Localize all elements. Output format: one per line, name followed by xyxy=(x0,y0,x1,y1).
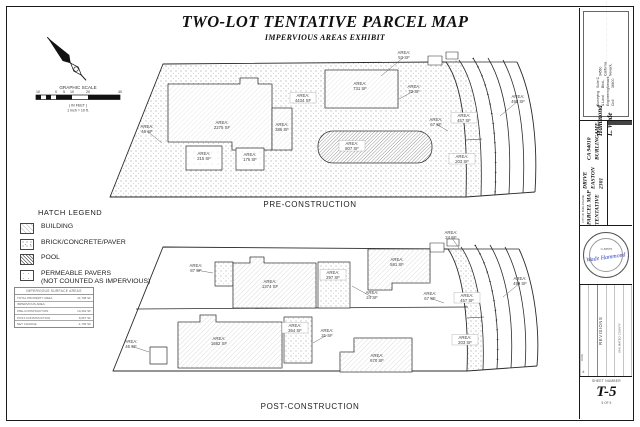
engineer-box: L. Wade Hammond Civil Engineering & Land… xyxy=(580,8,632,121)
table-row: IMPERVIOUS AREA: xyxy=(15,302,93,309)
sheet-header: TWO-LOT TENTATIVE PARCEL MAP IMPERVIOUS … xyxy=(90,12,560,42)
permeable-swatch-icon xyxy=(20,270,34,281)
page-subtitle: IMPERVIOUS AREAS EXHIBIT xyxy=(90,33,560,42)
legend-item-label: BUILDING xyxy=(41,223,73,231)
legend-item-label: PERMEABLE PAVERS (NOT COUNTED AS IMPERVI… xyxy=(41,270,150,287)
table-row: NET CHANGE-1,795 SF xyxy=(15,321,93,327)
seal-icon: C-66575 Wade Hammond xyxy=(583,232,629,278)
project-box: TENTATIVE PARCEL MAP 2301 EASTON DRIVE B… xyxy=(580,121,632,226)
project-city-state: BURLINGAME, CA 94010 xyxy=(586,121,602,160)
parcel-map-sheet: GRAPHIC SCALE 1005102040 ( IN FEET ) 1 i… xyxy=(0,0,640,427)
legend-title: HATCH LEGEND xyxy=(38,208,170,217)
title-block: L. Wade Hammond Civil Engineering & Land… xyxy=(579,8,632,420)
building-swatch-icon xyxy=(20,223,34,234)
legend-item-paver: BRICK/CONCRETE/PAVER xyxy=(20,239,170,250)
legend-item-label: POOL xyxy=(41,254,60,262)
engineer-address1: 36600 Newark Blvd., Suite C xyxy=(596,76,616,88)
revisions-number-label: # xyxy=(582,370,584,374)
legend-item-permeable: PERMEABLE PAVERS (NOT COUNTED AS IMPERVI… xyxy=(20,270,170,287)
city-note: CITY OF BURLINGAME xyxy=(582,195,585,223)
sheet-number-box: SHEET NUMBER T-5 5 OF 5 xyxy=(580,377,632,419)
engineer-tagline: Civil Engineering & Land Surveying xyxy=(596,87,616,105)
paver-swatch-icon xyxy=(20,239,34,250)
pool-swatch-icon xyxy=(20,254,34,265)
impervious-area-table: IMPERVIOUS SURFACE AREAS TOTAL PROPERTY … xyxy=(14,287,94,328)
engineer-contact: ········································… xyxy=(604,0,608,61)
sheet-number: T-5 xyxy=(580,383,632,401)
revisions-columns: REVISIONS DATE # xyxy=(580,285,632,377)
revisions-box: REVISIONS DATE # xyxy=(580,285,632,378)
legend-item-building: BUILDING xyxy=(20,223,170,234)
revisions-title: REVISIONS xyxy=(598,285,603,377)
table-row: PRE-CONSTRUCTION10,462 SF xyxy=(15,308,93,315)
page-title: TWO-LOT TENTATIVE PARCEL MAP xyxy=(90,12,560,32)
area-table-title: IMPERVIOUS SURFACE AREAS xyxy=(15,288,93,295)
project-address: 2301 EASTON DRIVE xyxy=(582,160,606,189)
legend-item-label: BRICK/CONCRETE/PAVER xyxy=(41,239,126,247)
legend-item-pool: POOL xyxy=(20,254,170,265)
hatch-legend: HATCH LEGEND BUILDING BRICK/CONCRETE/PAV… xyxy=(20,208,170,291)
project-name: TENTATIVE PARCEL MAP xyxy=(586,188,602,224)
license-number: C-66575 xyxy=(584,247,628,251)
project-title: TENTATIVE PARCEL MAP 2301 EASTON DRIVE B… xyxy=(580,121,607,225)
project-info-cells: SCALE 1" = 10' DATE 8-5-2024 JOB# 5813 A… xyxy=(607,121,632,225)
engineer-address2: Newark, California 94560 xyxy=(599,61,614,75)
table-row: POST-CONSTRUCTION8,667 SF xyxy=(15,315,93,322)
table-row: TOTAL PROPERTY AREA41,798 SF xyxy=(15,295,93,302)
sheet-of-text: 5 OF 5 xyxy=(580,401,632,405)
post-construction-caption: POST-CONSTRUCTION xyxy=(230,402,390,411)
surveyor-stamp: C-66575 Wade Hammond xyxy=(580,226,632,285)
revisions-date-label: DATE xyxy=(581,354,584,361)
pre-construction-caption: PRE-CONSTRUCTION xyxy=(235,200,385,209)
